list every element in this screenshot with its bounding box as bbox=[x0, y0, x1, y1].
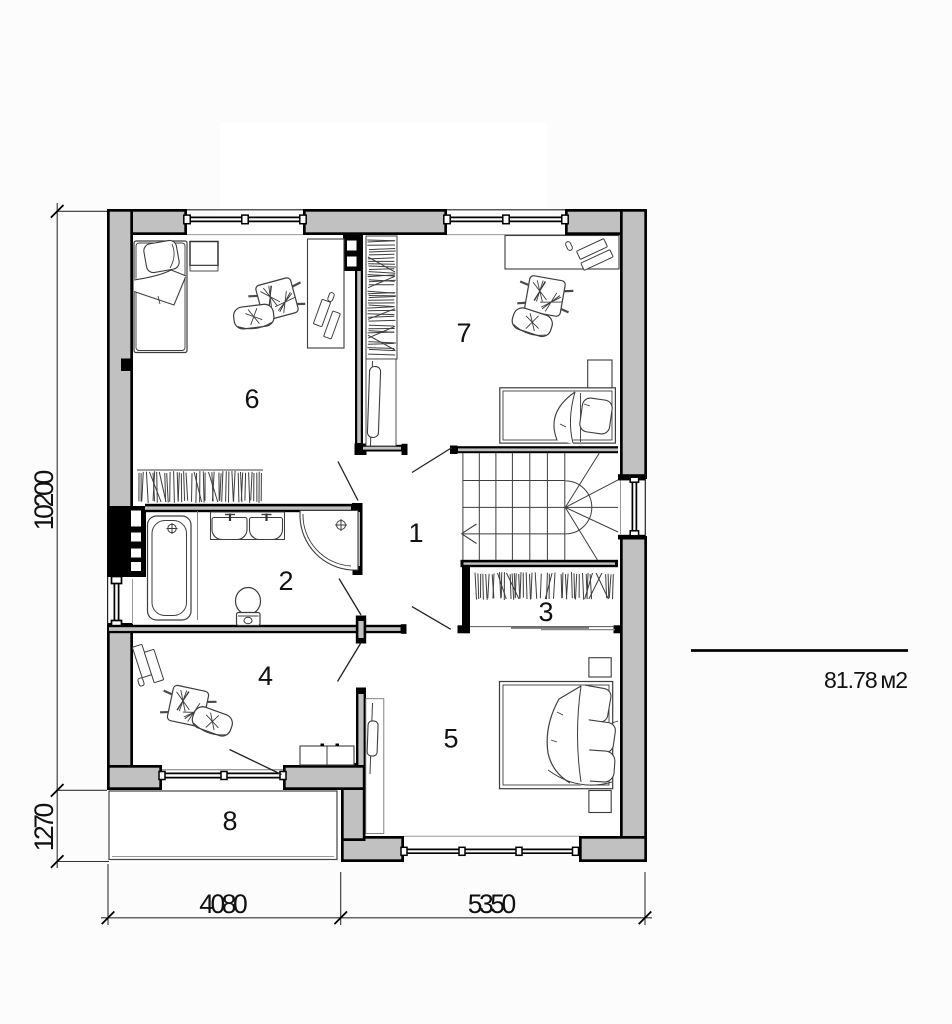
svg-text:5: 5 bbox=[443, 724, 458, 754]
svg-text:6: 6 bbox=[244, 384, 259, 414]
svg-text:8: 8 bbox=[222, 806, 237, 836]
svg-text:10200: 10200 bbox=[29, 470, 59, 531]
svg-text:81.78 м2: 81.78 м2 bbox=[824, 667, 908, 693]
svg-text:4080: 4080 bbox=[199, 889, 248, 919]
svg-text:1: 1 bbox=[408, 518, 423, 548]
svg-text:2: 2 bbox=[278, 566, 293, 596]
svg-text:3: 3 bbox=[538, 597, 553, 627]
svg-text:1270: 1270 bbox=[29, 803, 59, 852]
svg-text:5350: 5350 bbox=[468, 889, 517, 919]
svg-text:7: 7 bbox=[456, 318, 471, 348]
svg-text:4: 4 bbox=[258, 661, 273, 691]
